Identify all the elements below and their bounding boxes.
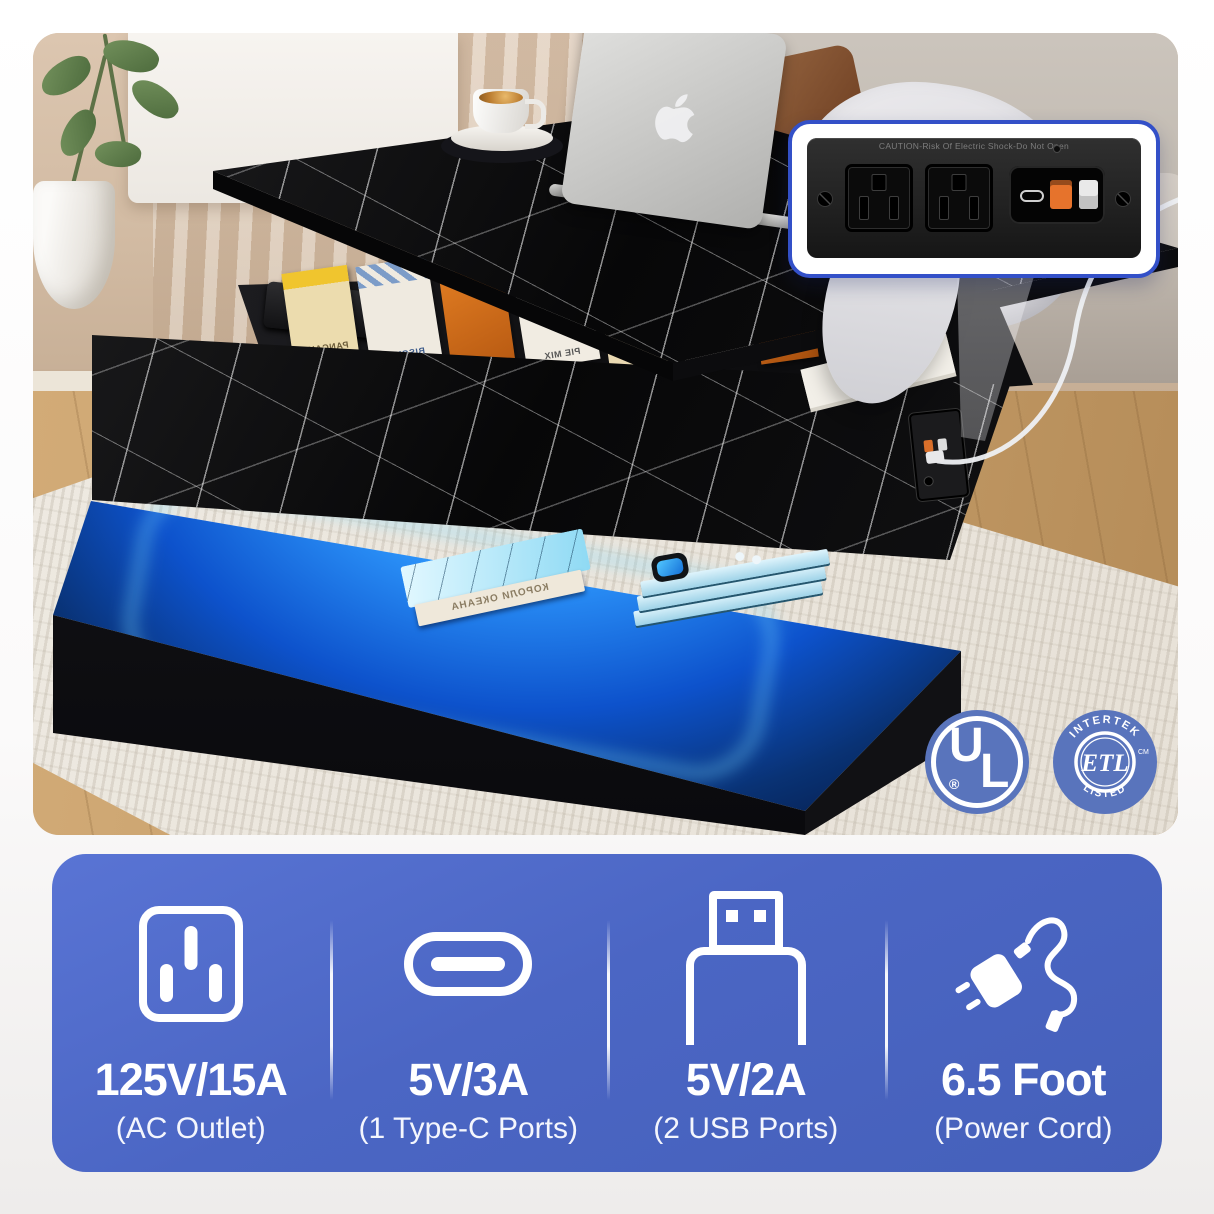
etl-cm-mark: CM [1138,749,1149,756]
outlet-slot [859,196,869,220]
spec-value: 5V/3A [408,1054,528,1106]
usb-a-port-orange [923,440,933,453]
usb-a-port-white [1079,180,1098,209]
indicator-led [1053,145,1061,153]
usb-a-port-orange [1050,180,1072,209]
type-c-port [1020,190,1044,202]
ground-slot [952,174,967,191]
etl-center-text: ETL [1080,750,1128,777]
spec-panel: 125V/15A (AC Outlet) 5V/3A (1 Type-C Por… [52,854,1162,1172]
ul-letter-u: U [949,718,984,773]
spec-label: (Power Cord) [934,1112,1112,1146]
power-cord-icon [948,888,1098,1040]
caution-text: CAUTION-Risk Of Electric Shock-Do Not Op… [807,141,1141,151]
column-divider [885,920,888,1100]
earbud [735,551,745,561]
usb-a-port-white [937,438,947,451]
spec-value: 5V/2A [686,1054,806,1106]
apple-logo-icon [643,83,706,146]
spec-item-type-c: 5V/3A (1 Type-C Ports) [330,854,608,1172]
ac-outlet [925,164,993,232]
coffee [479,91,523,104]
spec-item-power-cord: 6.5 Foot (Power Cord) [885,854,1163,1172]
ul-registered-mark: ® [949,776,959,792]
screw-icon [817,191,833,207]
screw-icon [1115,191,1131,207]
usb-module [1009,166,1105,224]
outlet-slot [969,196,979,220]
etl-badge: INTERTEK LISTED ETL CM [1053,710,1157,814]
ac-outlet [845,164,913,232]
table-side-outlet [909,409,970,502]
power-strip: CAUTION-Risk Of Electric Shock-Do Not Op… [807,138,1141,258]
laptop [560,33,787,230]
spec-item-ac-outlet: 125V/15A (AC Outlet) [52,854,330,1172]
spec-label: (AC Outlet) [116,1112,266,1146]
ul-letter-l: L [980,744,1009,799]
usb-icon [690,888,802,1040]
column-divider [607,920,610,1100]
type-c-icon [404,888,532,1040]
spec-value: 125V/15A [95,1054,287,1106]
ul-badge: U L ® [925,710,1029,814]
spec-value: 6.5 Foot [941,1054,1106,1106]
spec-label: (2 USB Ports) [653,1112,838,1146]
outlet-slot [889,196,899,220]
ac-outlet-icon [139,888,243,1040]
product-photo: PANCAKE MIX BISCUIT PIE MIX КОРОЛИ ОКЕАН… [33,33,1178,835]
column-divider [330,920,333,1100]
spec-item-usb: 5V/2A (2 USB Ports) [607,854,885,1172]
spec-label: (1 Type-C Ports) [358,1112,578,1146]
ground-slot [872,174,887,191]
screw-icon [923,476,934,487]
outlet-slot [939,196,949,220]
power-strip-inset: CAUTION-Risk Of Electric Shock-Do Not Op… [788,120,1160,278]
cup-handle [525,99,546,129]
